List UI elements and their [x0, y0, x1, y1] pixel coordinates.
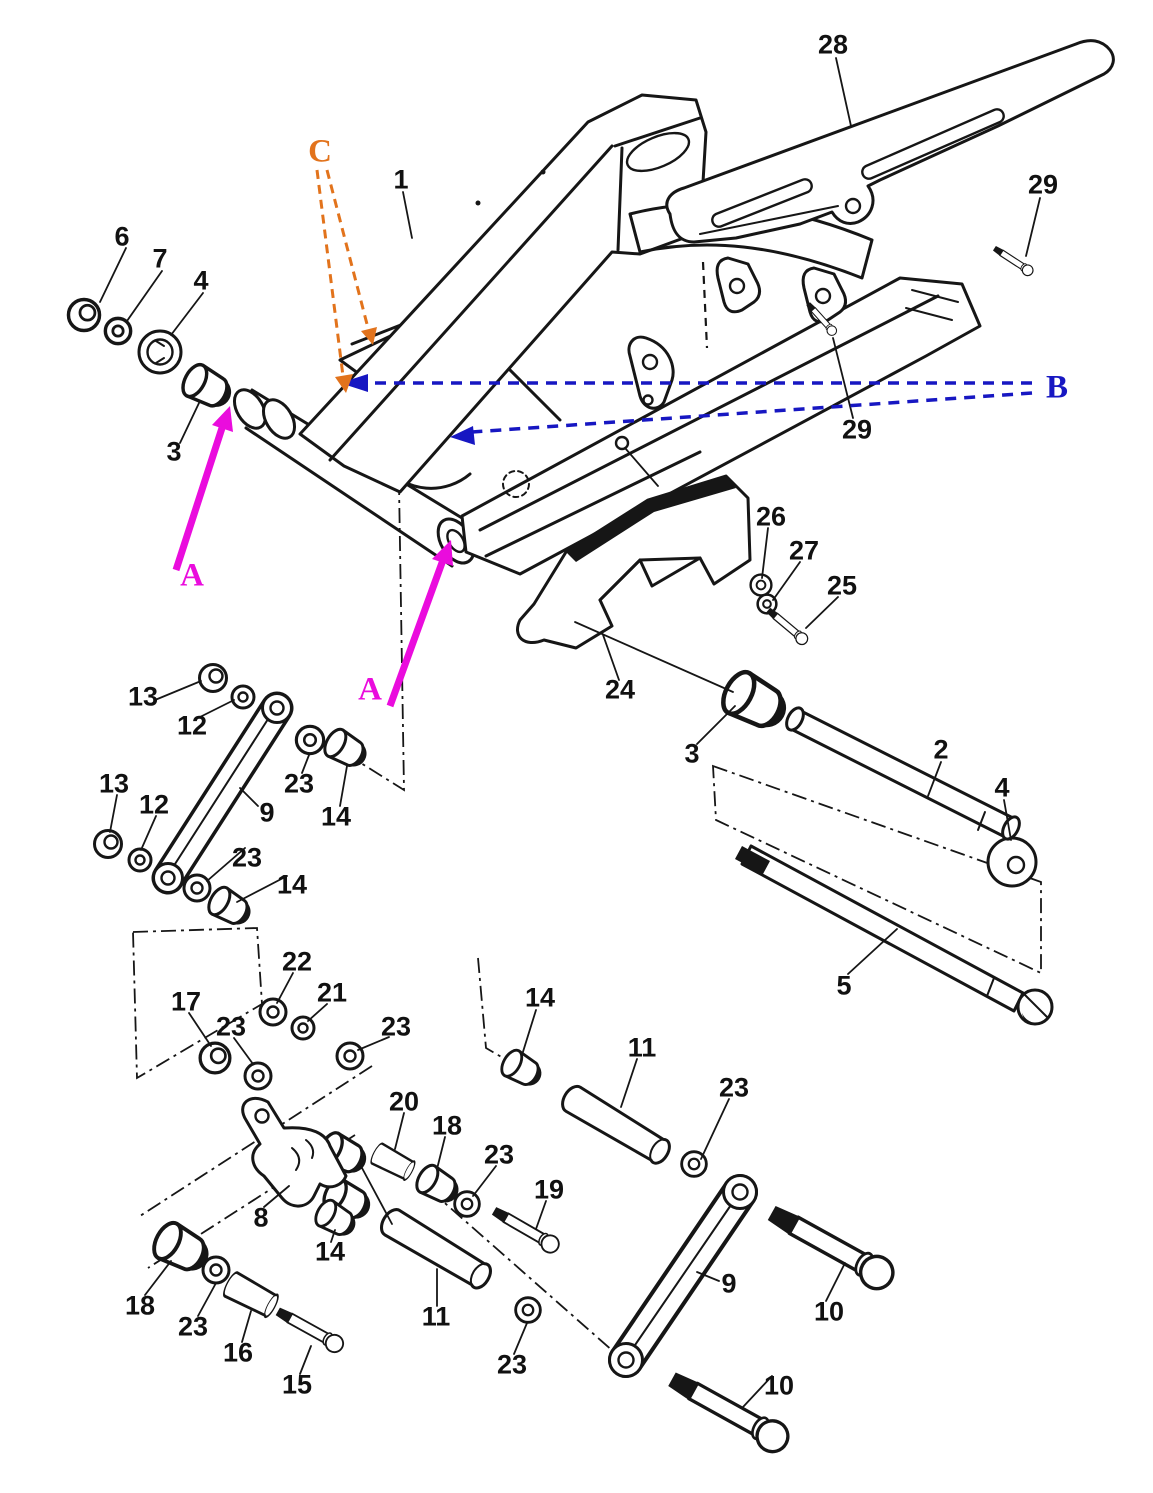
- part-label-26: 26: [756, 502, 786, 533]
- part-label-20: 20: [389, 1087, 419, 1118]
- part-label-4: 4: [193, 266, 208, 297]
- part-label-13: 13: [128, 682, 158, 713]
- part-label-23: 23: [381, 1012, 411, 1043]
- part-label-11: 11: [628, 1033, 657, 1064]
- part-label-27: 27: [789, 536, 819, 567]
- part-label-25: 25: [827, 571, 857, 602]
- part-label-10: 10: [764, 1371, 794, 1402]
- part-label-2: 2: [933, 735, 948, 766]
- part-label-12: 12: [139, 790, 169, 821]
- part-label-3: 3: [684, 739, 699, 770]
- labels-layer: 6743128292926272524324513122314913122314…: [0, 0, 1153, 1493]
- exploded-parts-diagram-page: 6743128292926272524324513122314913122314…: [0, 0, 1153, 1493]
- part-label-8: 8: [253, 1203, 268, 1234]
- part-label-18: 18: [432, 1111, 462, 1142]
- part-label-23: 23: [178, 1312, 208, 1343]
- part-label-13: 13: [99, 769, 129, 800]
- part-label-21: 21: [317, 978, 347, 1009]
- part-label-23: 23: [719, 1073, 749, 1104]
- part-label-29: 29: [1028, 170, 1058, 201]
- part-label-14: 14: [321, 802, 351, 833]
- part-label-4: 4: [994, 773, 1009, 804]
- part-label-14: 14: [315, 1237, 345, 1268]
- part-label-9: 9: [721, 1269, 736, 1300]
- part-label-10: 10: [814, 1297, 844, 1328]
- annotation-letter-C: C: [308, 134, 332, 171]
- part-label-17: 17: [171, 987, 201, 1018]
- part-label-14: 14: [277, 870, 307, 901]
- annotation-letter-A: A: [358, 672, 382, 709]
- annotation-letter-B: B: [1046, 370, 1068, 407]
- part-label-15: 15: [282, 1370, 312, 1401]
- part-label-1: 1: [393, 165, 408, 196]
- part-label-24: 24: [605, 675, 635, 706]
- part-label-23: 23: [284, 769, 314, 800]
- annotation-letter-A: A: [180, 558, 204, 595]
- part-label-5: 5: [836, 971, 851, 1002]
- part-label-16: 16: [223, 1338, 253, 1369]
- part-label-29: 29: [842, 415, 872, 446]
- part-label-22: 22: [282, 947, 312, 978]
- part-label-23: 23: [216, 1012, 246, 1043]
- part-label-23: 23: [497, 1350, 527, 1381]
- part-label-18: 18: [125, 1291, 155, 1322]
- part-label-9: 9: [259, 798, 274, 829]
- part-label-23: 23: [232, 843, 262, 874]
- part-label-14: 14: [525, 983, 555, 1014]
- part-label-3: 3: [166, 437, 181, 468]
- part-label-6: 6: [114, 222, 129, 253]
- part-label-28: 28: [818, 30, 848, 61]
- part-label-7: 7: [152, 244, 167, 275]
- part-label-19: 19: [534, 1175, 564, 1206]
- part-label-12: 12: [177, 711, 207, 742]
- part-label-11: 11: [422, 1302, 451, 1333]
- part-label-23: 23: [484, 1140, 514, 1171]
